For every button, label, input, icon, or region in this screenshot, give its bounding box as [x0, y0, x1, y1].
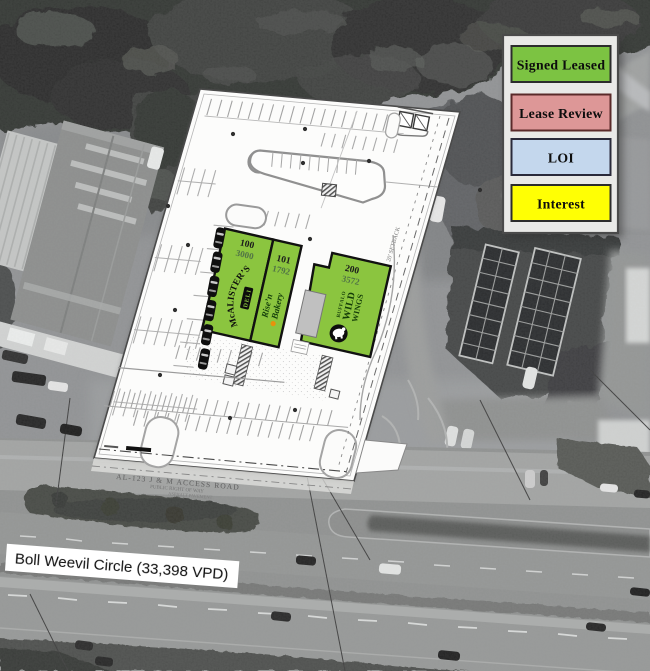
svg-text:Interest: Interest [537, 197, 585, 212]
svg-text:LOI: LOI [548, 151, 574, 166]
svg-text:Signed Leased: Signed Leased [517, 58, 606, 73]
svg-text:Lease Review: Lease Review [519, 106, 603, 121]
